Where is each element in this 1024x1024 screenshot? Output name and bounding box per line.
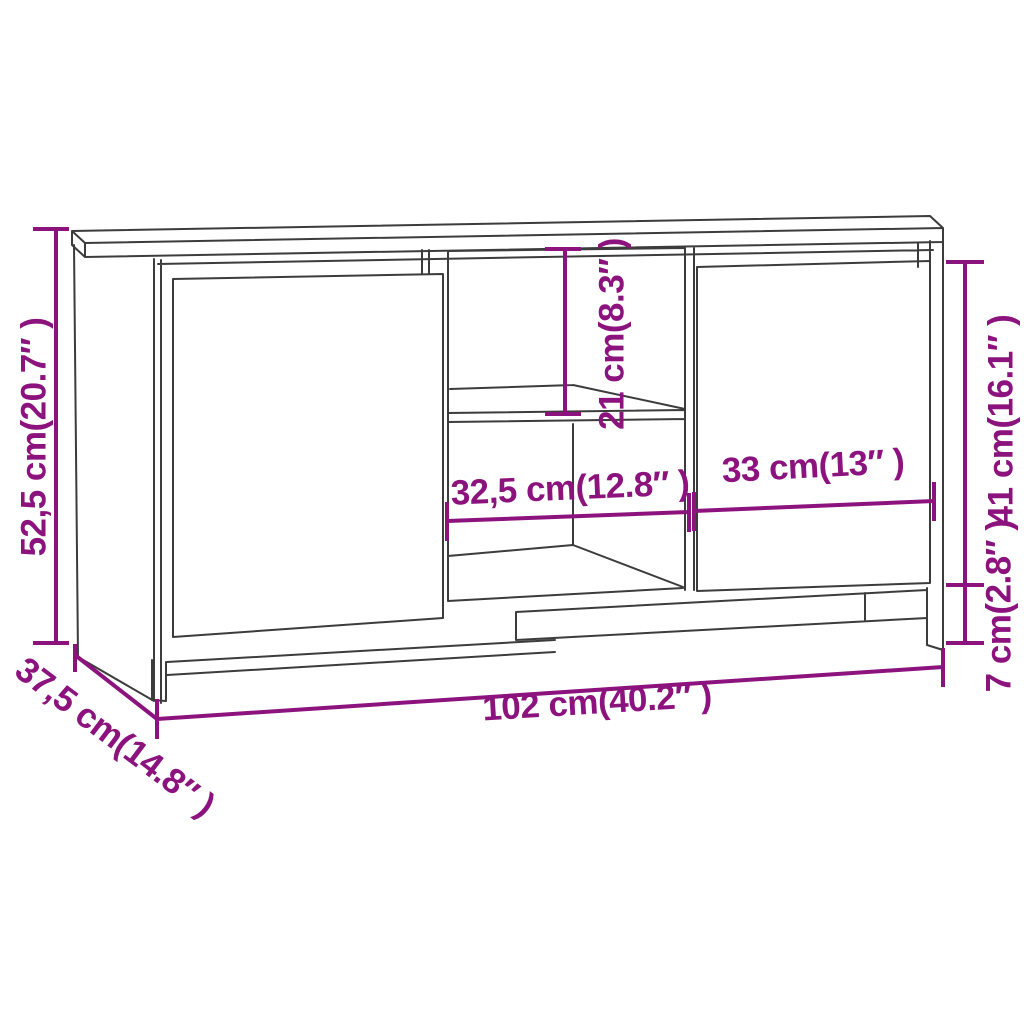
label-overall-height: 52,5 cm(20.7″ ): [15, 318, 54, 557]
diagram-canvas: 52,5 cm(20.7″ ) 37,5 cm(14.8″ ) 102 cm(4…: [0, 0, 1024, 1024]
label-middle-opening-width: 32,5 cm(12.8″ ): [450, 463, 690, 512]
dimension-labels: 52,5 cm(20.7″ ) 37,5 cm(14.8″ ) 102 cm(4…: [8, 238, 1021, 824]
dim-leg-height-line: [946, 585, 984, 643]
cabinet-left-door: [173, 274, 443, 637]
label-overall-depth: 37,5 cm(14.8″ ): [8, 650, 222, 825]
label-right-door-width: 33 cm(13″ ): [721, 442, 905, 490]
cabinet-right-door: [697, 261, 930, 591]
label-overall-width: 102 cm(40.2″ ): [481, 676, 713, 729]
cabinet-base-and-legs: [152, 588, 943, 701]
label-door-height: 41 cm(16.1″ ): [982, 315, 1021, 526]
dim-door-height-line: [946, 262, 984, 585]
dim-top-compartment-height-line: [545, 249, 581, 414]
cabinet-middle-shelves: [422, 248, 694, 601]
label-top-compartment-height: 21 cm(8.3″ ): [593, 238, 632, 430]
label-leg-height: 7 cm(2.8″ ): [980, 520, 1019, 693]
dimension-diagram-page: 52,5 cm(20.7″ ) 37,5 cm(14.8″ ) 102 cm(4…: [0, 0, 1024, 1024]
